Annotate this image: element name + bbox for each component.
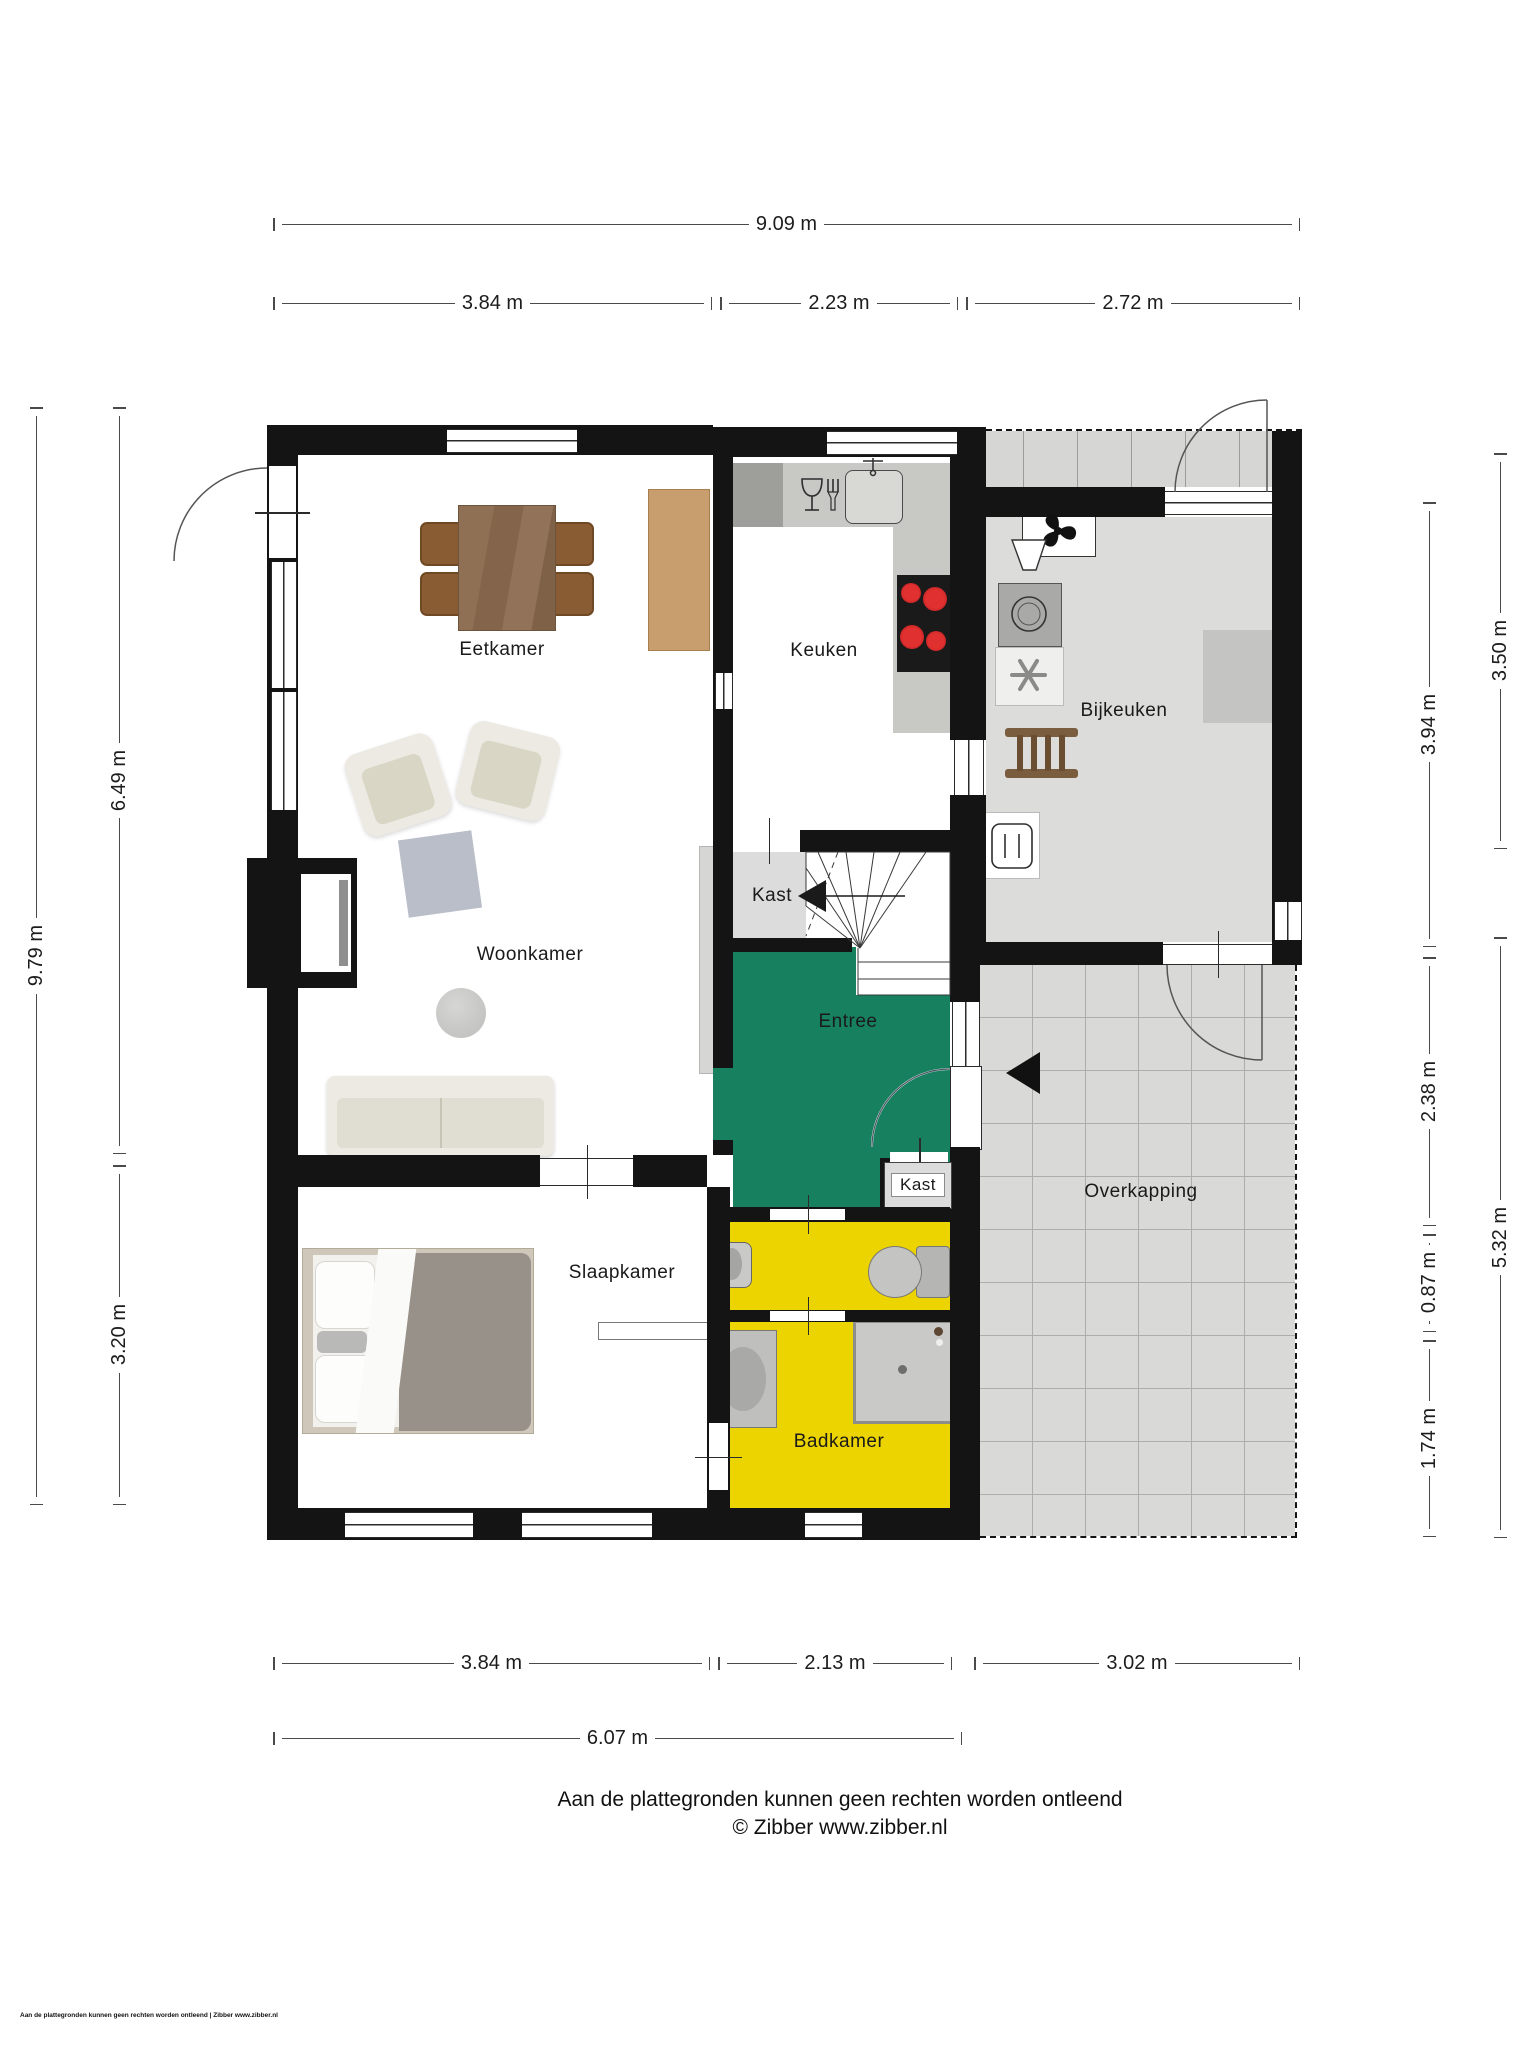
dim-right-inner3: 0.87 m bbox=[1421, 1234, 1437, 1332]
dim-top-seg2: 2.23 m bbox=[720, 295, 958, 311]
wall-kast-entree bbox=[713, 938, 852, 952]
freezer bbox=[995, 647, 1064, 706]
porch-grid-line bbox=[1077, 431, 1078, 487]
sofa bbox=[327, 1076, 554, 1156]
label-slaapkamer: Slaapkamer bbox=[569, 1262, 675, 1284]
door-bijkeuken-overkapping bbox=[1163, 944, 1272, 965]
stairs-floor-lower bbox=[856, 938, 950, 995]
footer-disclaimer: Aan de plattegronden kunnen geen rechten… bbox=[557, 1788, 1122, 1812]
wall-entree-right-top bbox=[950, 965, 980, 1002]
door-kast-entree bbox=[890, 1152, 948, 1162]
bench bbox=[1203, 630, 1272, 723]
dim-right-inner1: 3.94 m bbox=[1421, 502, 1437, 947]
rug bbox=[398, 830, 482, 918]
stove-burner bbox=[926, 631, 946, 651]
wall-badkamer-right bbox=[950, 1147, 980, 1540]
label-entree: Entree bbox=[819, 1011, 878, 1033]
overkapping-dashed-right bbox=[1295, 965, 1297, 1538]
door-left-exterior bbox=[269, 466, 296, 558]
label-kast-hal: Kast bbox=[752, 885, 792, 907]
stove-burner bbox=[900, 625, 924, 649]
armchair-seat bbox=[469, 739, 543, 810]
door-badkamer bbox=[770, 1311, 845, 1321]
label-eetkamer: Eetkamer bbox=[459, 639, 544, 661]
dim-top-seg3: 2.72 m bbox=[966, 295, 1300, 311]
window-top-keuken bbox=[827, 431, 957, 455]
porch-dashed-top bbox=[986, 429, 1302, 431]
floorplan-page: Eetkamer Keuken Bijkeuken Kast Woonkamer… bbox=[0, 0, 1536, 2048]
label-bijkeuken: Bijkeuken bbox=[1081, 700, 1168, 722]
armchair bbox=[453, 718, 563, 824]
wall-keuken-bijkeuken bbox=[950, 455, 986, 740]
shower bbox=[853, 1320, 955, 1424]
toilet bbox=[868, 1244, 950, 1298]
dim-left-total: 9.79 m bbox=[28, 407, 44, 1505]
porch-floor bbox=[986, 431, 1272, 487]
pouf bbox=[436, 988, 486, 1038]
dim-right-inner4: 1.74 m bbox=[1421, 1340, 1437, 1537]
stove-burner bbox=[901, 583, 921, 603]
stove-burner bbox=[923, 587, 947, 611]
overkapping-floor bbox=[980, 965, 1295, 1536]
door-slaapkamer-badkamer bbox=[709, 1423, 728, 1490]
armchair-seat bbox=[360, 752, 437, 826]
front-door-opening bbox=[950, 1066, 982, 1150]
stove bbox=[897, 575, 950, 672]
wall-keuken-bijkeuken-2 bbox=[950, 795, 986, 965]
window-left-upper bbox=[271, 562, 297, 688]
dim-bottom-seg1: 3.84 m bbox=[273, 1655, 710, 1671]
window-bottom-slaapkamer-1 bbox=[345, 1512, 473, 1538]
footer-copyright: © Zibber www.zibber.nl bbox=[732, 1816, 947, 1840]
bed-blanket bbox=[399, 1253, 531, 1431]
sideboard-cabinet bbox=[648, 489, 710, 651]
armchair bbox=[341, 730, 455, 840]
washing-machine bbox=[998, 583, 1062, 647]
label-keuken: Keuken bbox=[790, 640, 857, 662]
opening-woonkamer-entree bbox=[713, 1068, 733, 1140]
label-woonkamer: Woonkamer bbox=[477, 944, 584, 966]
dim-left-seg2: 3.20 m bbox=[111, 1165, 127, 1505]
wall-living-keuken bbox=[713, 455, 733, 1155]
boiler-unit bbox=[980, 812, 1040, 879]
dim-top-seg1: 3.84 m bbox=[273, 295, 712, 311]
bed-tray bbox=[317, 1331, 367, 1353]
hatch-eetkamer-keuken bbox=[715, 673, 733, 709]
wall-bijkeuken-bottom bbox=[978, 942, 1163, 965]
dim-right-inner2: 2.38 m bbox=[1421, 957, 1437, 1226]
dim-bottom-seg3: 3.02 m bbox=[974, 1655, 1300, 1671]
wall-woonkamer-slaapkamer bbox=[267, 1155, 540, 1187]
label-overkapping: Overkapping bbox=[1084, 1181, 1197, 1203]
porch-grid-line bbox=[1185, 431, 1186, 487]
dining-table bbox=[458, 505, 556, 631]
stairs-floor-upper bbox=[806, 852, 950, 947]
porch-grid-line bbox=[1023, 431, 1024, 487]
window-bijkeuken-top bbox=[1165, 491, 1272, 515]
front-door-sidelight bbox=[952, 1002, 980, 1066]
window-right-bijkeuken bbox=[1274, 902, 1302, 940]
wall-bijkeuken-bottom-corner bbox=[1272, 942, 1302, 965]
porch-grid-line bbox=[1239, 431, 1240, 487]
corner-note: Aan de plattegronden kunnen geen rechten… bbox=[20, 2012, 278, 2019]
vent-unit bbox=[1022, 511, 1096, 557]
window-bottom-badkamer bbox=[805, 1512, 862, 1538]
wall-woonkamer-slaapkamer-2 bbox=[633, 1155, 707, 1187]
kitchen-counter-dark bbox=[733, 463, 783, 527]
door-arc-left bbox=[174, 468, 267, 561]
window-left-lower bbox=[271, 692, 297, 810]
kitchen-sink bbox=[845, 470, 903, 524]
wall-bijkeuken-top bbox=[986, 487, 1165, 517]
wall-right bbox=[1272, 431, 1302, 942]
fireplace-tv-unit bbox=[247, 858, 357, 988]
overkapping-dashed-bottom bbox=[980, 1536, 1297, 1538]
porch-grid-line bbox=[1131, 431, 1132, 487]
wall-keuken-bottom bbox=[800, 830, 960, 852]
label-kast-entree: Kast bbox=[891, 1173, 945, 1197]
window-top-eetkamer bbox=[447, 429, 577, 453]
bed bbox=[302, 1248, 534, 1434]
dim-right-outer1: 3.50 m bbox=[1492, 453, 1508, 849]
dim-top-total: 9.09 m bbox=[273, 216, 1300, 232]
label-badkamer: Badkamer bbox=[794, 1431, 885, 1453]
dim-left-seg1: 6.49 m bbox=[111, 407, 127, 1154]
door-wc bbox=[770, 1209, 845, 1220]
dim-right-outer2: 5.32 m bbox=[1492, 937, 1508, 1538]
tv-screen bbox=[339, 880, 348, 966]
sofa-cushion-split bbox=[440, 1098, 442, 1148]
dim-bottom-total: 6.07 m bbox=[273, 1730, 962, 1746]
wall-shelf bbox=[598, 1322, 709, 1340]
ladder bbox=[1005, 728, 1078, 778]
window-bottom-slaapkamer-2 bbox=[522, 1512, 652, 1538]
dim-bottom-seg2: 2.13 m bbox=[718, 1655, 952, 1671]
bed-pillow bbox=[315, 1261, 375, 1329]
hatch-keuken-bijkeuken bbox=[954, 740, 984, 795]
door-keuken bbox=[737, 832, 800, 850]
door-slaapkamer bbox=[540, 1158, 633, 1186]
